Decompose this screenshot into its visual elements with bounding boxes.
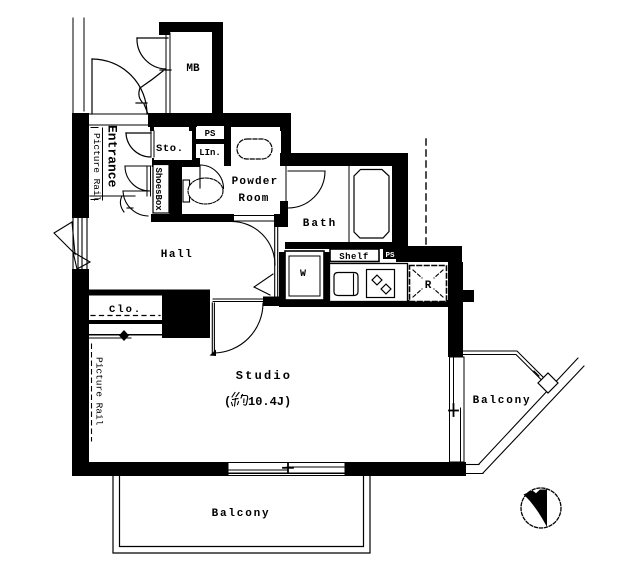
svg-text:Hall: Hall — [161, 249, 193, 261]
svg-text:R: R — [425, 280, 432, 292]
svg-text:Balcony: Balcony — [212, 508, 271, 520]
svg-text:Balcony: Balcony — [473, 395, 532, 407]
svg-text:Picture Rail: Picture Rail — [91, 133, 102, 202]
svg-text:LIn.: LIn. — [199, 148, 221, 158]
svg-text:MB: MB — [186, 63, 200, 75]
svg-text:Bath: Bath — [303, 218, 337, 230]
svg-text:W: W — [300, 269, 306, 280]
svg-text:Shelf: Shelf — [339, 252, 369, 262]
svg-text:ShoesBox: ShoesBox — [153, 168, 163, 212]
svg-text:Powder: Powder — [232, 176, 279, 188]
svg-text:(: ( — [224, 395, 231, 409]
svg-text:Room: Room — [238, 193, 269, 205]
svg-text:Studio: Studio — [236, 369, 292, 383]
svg-text:Clo.: Clo. — [109, 304, 142, 316]
svg-text:Sto.: Sto. — [156, 143, 184, 155]
svg-text:PS: PS — [205, 129, 216, 139]
svg-text:PS: PS — [385, 252, 395, 260]
svg-text:Picture Rail: Picture Rail — [94, 357, 105, 426]
svg-text:Entrance: Entrance — [105, 125, 120, 188]
svg-text:10.4J): 10.4J) — [248, 395, 291, 409]
